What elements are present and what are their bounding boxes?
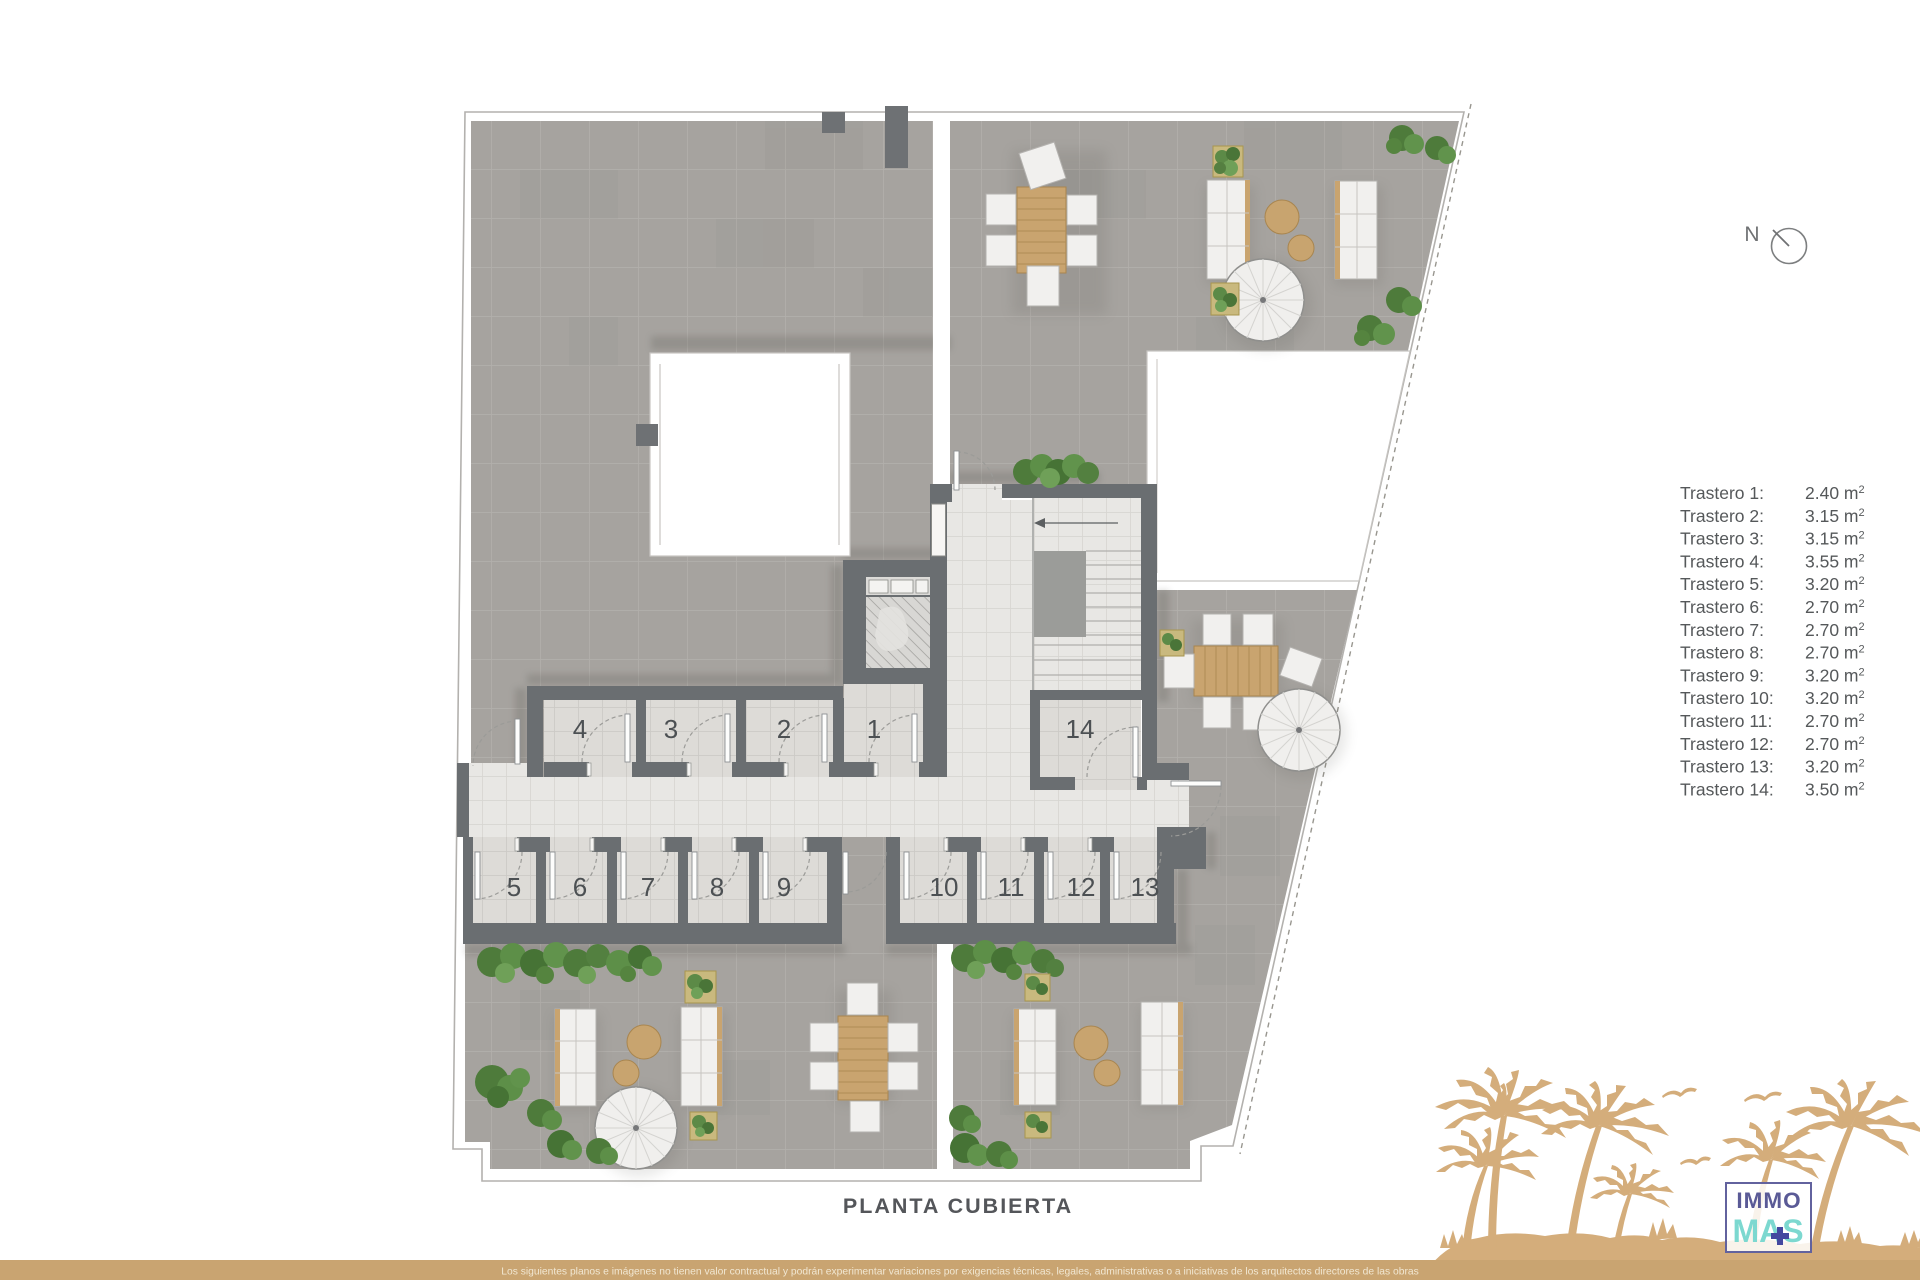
svg-text:11: 11 — [998, 872, 1025, 902]
svg-text:3.20 m2: 3.20 m2 — [1805, 665, 1865, 685]
svg-text:8: 8 — [710, 872, 724, 902]
svg-text:2.70 m2: 2.70 m2 — [1805, 597, 1865, 617]
svg-text:3.20 m2: 3.20 m2 — [1805, 688, 1865, 708]
svg-text:Trastero 7:: Trastero 7: — [1680, 620, 1764, 640]
svg-text:Trastero 8:: Trastero 8: — [1680, 643, 1764, 663]
svg-text:Trastero 9:: Trastero 9: — [1680, 665, 1764, 685]
svg-text:Trastero 12:: Trastero 12: — [1680, 734, 1774, 754]
svg-text:3.15 m2: 3.15 m2 — [1805, 529, 1865, 549]
svg-text:PLANTA CUBIERTA: PLANTA CUBIERTA — [843, 1194, 1073, 1218]
svg-text:1: 1 — [867, 714, 881, 744]
svg-text:3.20 m2: 3.20 m2 — [1805, 574, 1865, 594]
svg-text:2.70 m2: 2.70 m2 — [1805, 620, 1865, 640]
svg-text:2.70 m2: 2.70 m2 — [1805, 734, 1865, 754]
svg-text:2.70 m2: 2.70 m2 — [1805, 711, 1865, 731]
svg-text:MAS: MAS — [1732, 1213, 1803, 1249]
svg-text:9: 9 — [777, 872, 791, 902]
svg-text:4: 4 — [573, 714, 587, 744]
svg-text:3.50 m2: 3.50 m2 — [1805, 779, 1865, 799]
svg-text:14: 14 — [1066, 714, 1095, 744]
svg-text:10: 10 — [930, 872, 959, 902]
svg-text:7: 7 — [641, 872, 655, 902]
svg-text:2: 2 — [777, 714, 791, 744]
svg-text:3.55 m2: 3.55 m2 — [1805, 551, 1865, 571]
svg-text:5: 5 — [507, 872, 521, 902]
svg-text:Trastero 14:: Trastero 14: — [1680, 779, 1774, 799]
svg-text:N: N — [1744, 223, 1759, 246]
svg-text:IMMO: IMMO — [1736, 1188, 1801, 1213]
svg-text:Trastero 13:: Trastero 13: — [1680, 757, 1774, 777]
svg-text:6: 6 — [573, 872, 587, 902]
svg-text:Trastero 5:: Trastero 5: — [1680, 574, 1764, 594]
svg-text:Trastero 4:: Trastero 4: — [1680, 551, 1764, 571]
svg-text:Trastero 2:: Trastero 2: — [1680, 506, 1764, 526]
svg-text:Trastero 6:: Trastero 6: — [1680, 597, 1764, 617]
svg-text:3.15 m2: 3.15 m2 — [1805, 506, 1865, 526]
svg-text:12: 12 — [1067, 872, 1096, 902]
svg-text:Trastero 3:: Trastero 3: — [1680, 529, 1764, 549]
svg-text:Los siguientes planos e imágen: Los siguientes planos e imágenes no tien… — [501, 1267, 1419, 1278]
svg-text:3.20 m2: 3.20 m2 — [1805, 757, 1865, 777]
svg-text:3: 3 — [664, 714, 678, 744]
svg-text:2.70 m2: 2.70 m2 — [1805, 643, 1865, 663]
svg-text:Trastero 11:: Trastero 11: — [1680, 711, 1772, 731]
svg-text:2.40 m2: 2.40 m2 — [1805, 483, 1865, 503]
svg-text:13: 13 — [1131, 872, 1160, 902]
svg-text:Trastero 10:: Trastero 10: — [1680, 688, 1774, 708]
svg-text:Trastero 1:: Trastero 1: — [1680, 483, 1764, 503]
